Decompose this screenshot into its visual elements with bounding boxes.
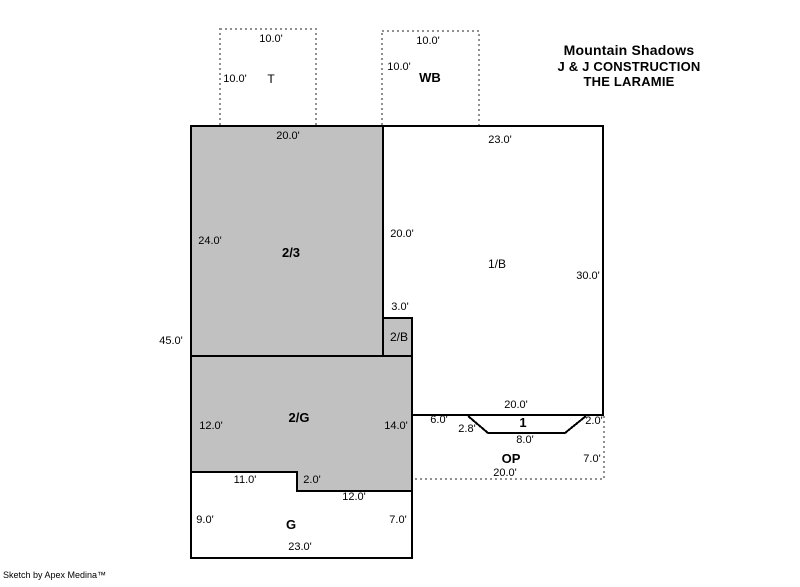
area-g-left-dim: 9.0'	[196, 515, 213, 526]
area-label-2-3: 2/3	[282, 246, 300, 259]
area-g-notch-right-dim: 12.0'	[342, 492, 366, 503]
area-g-right-dim: 7.0'	[389, 515, 406, 526]
floorplan-sketch: Mountain Shadows J & J CONSTRUCTION THE …	[0, 0, 800, 587]
area-label-g: G	[286, 518, 296, 531]
area-g-notch-step-dim: 2.0'	[303, 475, 320, 486]
area-g-bottom-dim: 23.0'	[288, 542, 312, 553]
porch-left-diag-dim: 2.8'	[458, 424, 475, 435]
porch-trapezoid-shape	[468, 416, 586, 433]
area-2g-left-dim: 12.0'	[199, 421, 223, 432]
area-label-2g: 2/G	[289, 411, 310, 424]
porch-right-diag-dim: 2.0'	[585, 416, 602, 427]
area-label-1b: 1/B	[488, 258, 506, 270]
op-bottom-dim: 20.0'	[493, 468, 517, 479]
area-1b-top-dim: 23.0'	[488, 135, 512, 146]
area-g-notch-left-dim: 11.0'	[234, 475, 257, 486]
wb-left-dim: 10.0'	[387, 62, 411, 73]
area-2-3-left-dim: 24.0'	[198, 236, 222, 247]
area-2g-right-dim: 14.0'	[384, 421, 408, 432]
t-top-dim: 10.0'	[259, 34, 283, 45]
sketch-subtitle-builder: J & J CONSTRUCTION	[557, 59, 700, 74]
area-label-wb: WB	[419, 71, 441, 84]
area-label-2b: 2/B	[390, 331, 408, 343]
area-label-1: 1	[519, 416, 526, 429]
area-1b-right-dim: 30.0'	[576, 271, 600, 282]
op-top-dim: 20.0'	[504, 400, 528, 411]
sketch-subtitle-model: THE LARAMIE	[557, 74, 700, 89]
area-label-t: T	[267, 73, 274, 85]
area-label-op: OP	[502, 452, 521, 465]
area-2b-top-dim: 3.0'	[391, 302, 408, 313]
porch-bottom-dim: 8.0'	[516, 435, 533, 446]
sketch-credit: Sketch by Apex Medina™	[3, 570, 106, 581]
wb-top-dim: 10.0'	[416, 36, 440, 47]
area-2-3-top-dim: 20.0'	[276, 131, 300, 142]
area-1b-left-dim: 20.0'	[390, 229, 414, 240]
t-left-dim: 10.0'	[223, 74, 247, 85]
op-right-dim: 7.0'	[583, 454, 600, 465]
porch-left-run-dim: 6.0'	[430, 415, 447, 426]
title-block: Mountain Shadows J & J CONSTRUCTION THE …	[557, 41, 700, 89]
sketch-title: Mountain Shadows	[557, 41, 700, 59]
left-total-dim: 45.0'	[159, 336, 183, 347]
